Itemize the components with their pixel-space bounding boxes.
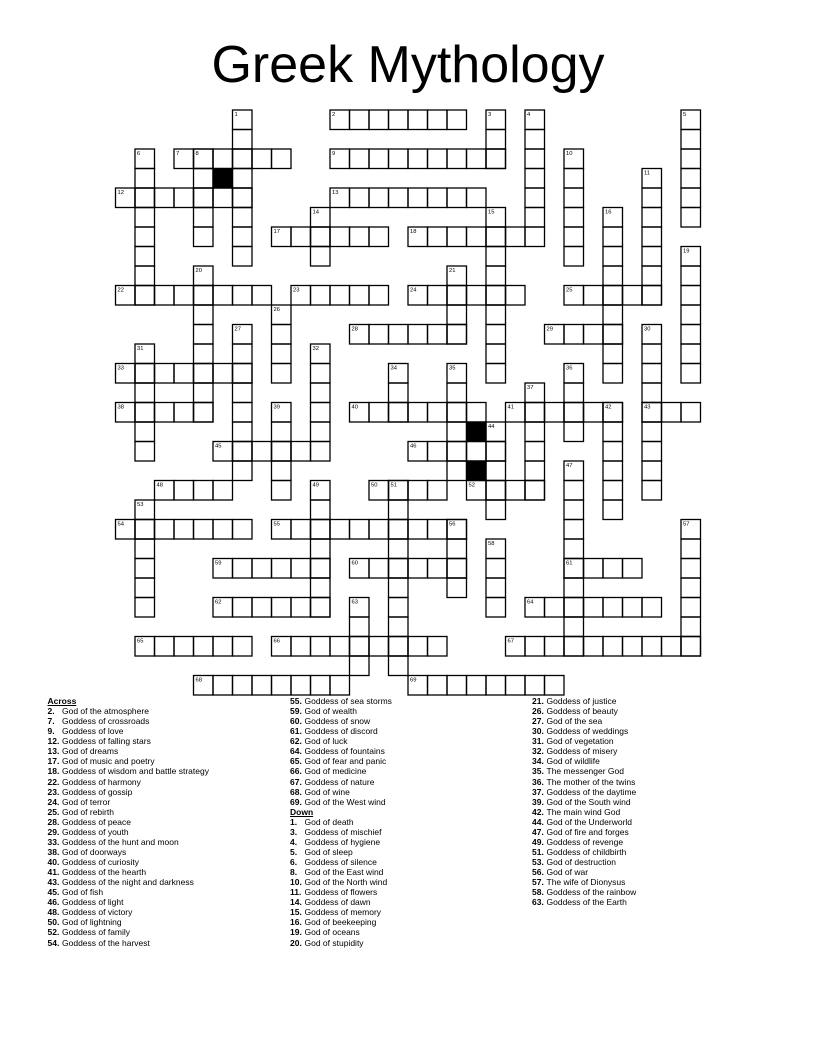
svg-text:63: 63: [352, 599, 358, 605]
svg-text:7: 7: [176, 151, 179, 157]
svg-text:47: 47: [566, 463, 572, 469]
svg-text:6: 6: [137, 151, 140, 157]
svg-text:42: 42: [605, 404, 611, 410]
svg-text:27: 27: [235, 326, 241, 332]
svg-text:26: 26: [274, 307, 280, 313]
svg-text:60: 60: [352, 560, 358, 566]
svg-text:15: 15: [488, 209, 494, 215]
svg-text:10: 10: [566, 151, 572, 157]
svg-text:19: 19: [683, 248, 689, 254]
svg-text:21: 21: [449, 268, 455, 274]
svg-text:38: 38: [118, 404, 124, 410]
svg-text:2: 2: [332, 112, 335, 118]
svg-text:13: 13: [332, 190, 338, 196]
svg-text:30: 30: [644, 326, 650, 332]
svg-text:55: 55: [274, 521, 280, 527]
svg-text:68: 68: [196, 677, 202, 683]
svg-text:32: 32: [313, 346, 319, 352]
svg-text:54: 54: [118, 521, 125, 527]
svg-text:59: 59: [215, 560, 221, 566]
svg-text:56: 56: [449, 521, 455, 527]
svg-text:64: 64: [527, 599, 534, 605]
svg-text:43: 43: [644, 404, 650, 410]
svg-text:48: 48: [157, 482, 163, 488]
svg-text:18: 18: [410, 229, 416, 235]
svg-text:22: 22: [118, 287, 124, 293]
svg-text:9: 9: [332, 151, 335, 157]
svg-text:12: 12: [118, 190, 124, 196]
svg-text:29: 29: [547, 326, 553, 332]
svg-text:14: 14: [313, 209, 320, 215]
svg-text:37: 37: [527, 385, 533, 391]
svg-text:50: 50: [371, 482, 377, 488]
svg-text:8: 8: [196, 151, 199, 157]
svg-text:52: 52: [469, 482, 475, 488]
svg-text:36: 36: [566, 365, 572, 371]
svg-text:40: 40: [352, 404, 358, 410]
svg-text:1: 1: [235, 112, 238, 118]
svg-text:58: 58: [488, 541, 494, 547]
svg-text:45: 45: [215, 443, 221, 449]
svg-text:16: 16: [605, 209, 611, 215]
svg-text:41: 41: [508, 404, 514, 410]
svg-text:65: 65: [137, 638, 143, 644]
svg-text:31: 31: [137, 346, 143, 352]
svg-text:53: 53: [137, 502, 143, 508]
svg-text:28: 28: [352, 326, 358, 332]
svg-text:34: 34: [391, 365, 398, 371]
svg-text:69: 69: [410, 677, 416, 683]
svg-text:5: 5: [683, 112, 686, 118]
svg-text:51: 51: [391, 482, 397, 488]
svg-text:57: 57: [683, 521, 689, 527]
svg-text:11: 11: [644, 170, 650, 176]
svg-text:24: 24: [410, 287, 417, 293]
svg-text:4: 4: [527, 112, 531, 118]
svg-text:46: 46: [410, 443, 416, 449]
svg-text:23: 23: [293, 287, 299, 293]
svg-text:66: 66: [274, 638, 280, 644]
svg-text:3: 3: [488, 112, 491, 118]
svg-text:17: 17: [274, 229, 280, 235]
svg-text:25: 25: [566, 287, 572, 293]
svg-text:61: 61: [566, 560, 572, 566]
svg-text:20: 20: [196, 268, 202, 274]
svg-text:39: 39: [274, 404, 280, 410]
svg-text:49: 49: [313, 482, 319, 488]
svg-text:62: 62: [215, 599, 221, 605]
svg-text:67: 67: [508, 638, 514, 644]
svg-text:44: 44: [488, 424, 495, 430]
svg-text:35: 35: [449, 365, 455, 371]
svg-text:33: 33: [118, 365, 124, 371]
